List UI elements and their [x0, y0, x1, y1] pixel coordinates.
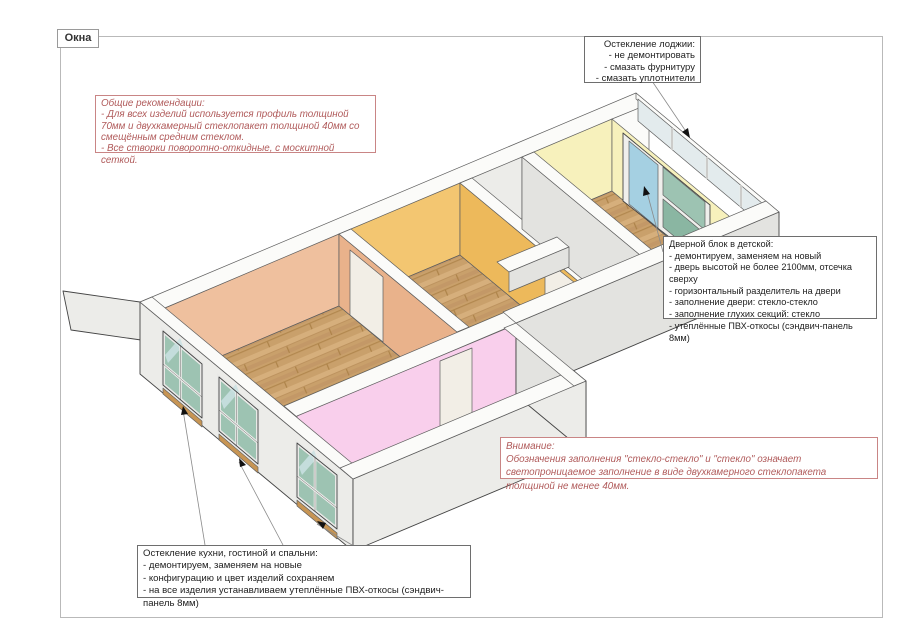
page-tag-label: Окна: [57, 29, 99, 48]
windows-glazing-callout: Остекление кухни, гостиной и спальни: - …: [137, 545, 471, 598]
loggia-glazing-callout: Остекление лоджии: - не демонтировать - …: [584, 36, 701, 83]
drawing-page: Окна Остекление лоджии: - не демонтирова…: [0, 0, 910, 644]
left-end-wall: [63, 291, 148, 341]
attention-callout: Внимание: Обозначения заполнения "стекло…: [500, 437, 878, 479]
door-block-callout: Дверной блок в детской: - демонтируем, з…: [663, 236, 877, 319]
general-recommendations-callout: Общие рекомендации: - Для всех изделий и…: [95, 95, 376, 153]
